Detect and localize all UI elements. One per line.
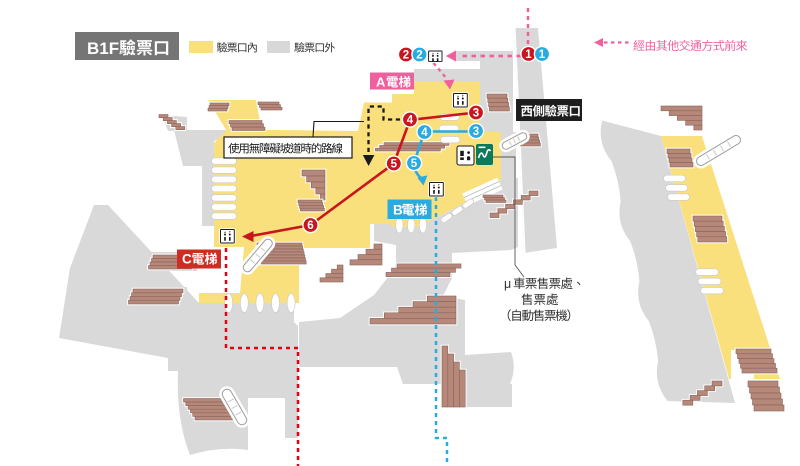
svg-text:6: 6 — [307, 220, 313, 232]
svg-text:1: 1 — [539, 49, 546, 61]
svg-text:B1F: B1F — [87, 39, 119, 58]
svg-text:5: 5 — [411, 158, 418, 170]
svg-text:B: B — [393, 203, 403, 218]
svg-text:A: A — [376, 75, 386, 90]
svg-text:5: 5 — [391, 159, 398, 171]
svg-text:C: C — [182, 252, 192, 267]
svg-text:4: 4 — [407, 115, 414, 127]
svg-text:1: 1 — [525, 49, 532, 61]
svg-text:3: 3 — [473, 126, 479, 138]
svg-text:2: 2 — [403, 50, 409, 62]
svg-text:3: 3 — [473, 108, 479, 120]
svg-text:2: 2 — [416, 50, 422, 62]
svg-text:μ: μ — [504, 277, 511, 291]
svg-text:4: 4 — [421, 127, 428, 139]
